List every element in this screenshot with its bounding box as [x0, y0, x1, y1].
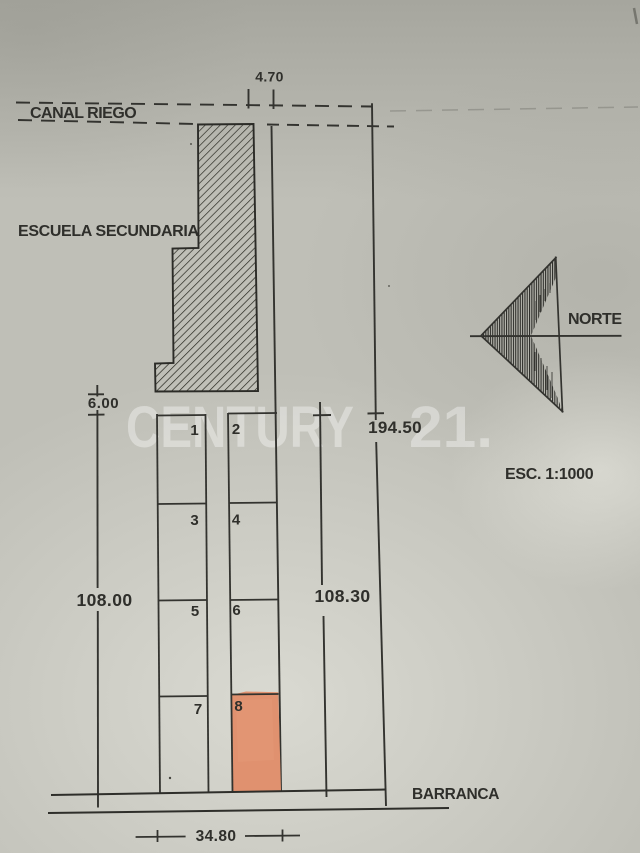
svg-text:CANAL RIEGO: CANAL RIEGO	[30, 105, 136, 122]
svg-text:ESC. 1:1000: ESC. 1:1000	[505, 466, 594, 483]
svg-text:4: 4	[232, 512, 241, 529]
svg-text:4.70: 4.70	[255, 69, 283, 85]
svg-text:ESCUELA SECUNDARIA: ESCUELA SECUNDARIA	[18, 223, 199, 240]
svg-text:8: 8	[234, 698, 242, 715]
svg-text:194.50: 194.50	[368, 418, 422, 437]
svg-text:5: 5	[191, 603, 199, 620]
svg-text:7: 7	[194, 701, 202, 718]
svg-text:108.00: 108.00	[77, 590, 133, 610]
svg-text:3: 3	[190, 512, 198, 529]
svg-text:34.80: 34.80	[196, 828, 237, 845]
svg-text:1: 1	[190, 422, 198, 439]
svg-text:BARRANCA: BARRANCA	[412, 786, 499, 803]
svg-text:6.00: 6.00	[88, 395, 119, 412]
svg-text:108.30: 108.30	[315, 586, 371, 606]
svg-text:NORTE: NORTE	[568, 311, 622, 328]
svg-text:6: 6	[232, 602, 240, 619]
svg-text:2: 2	[232, 421, 240, 438]
